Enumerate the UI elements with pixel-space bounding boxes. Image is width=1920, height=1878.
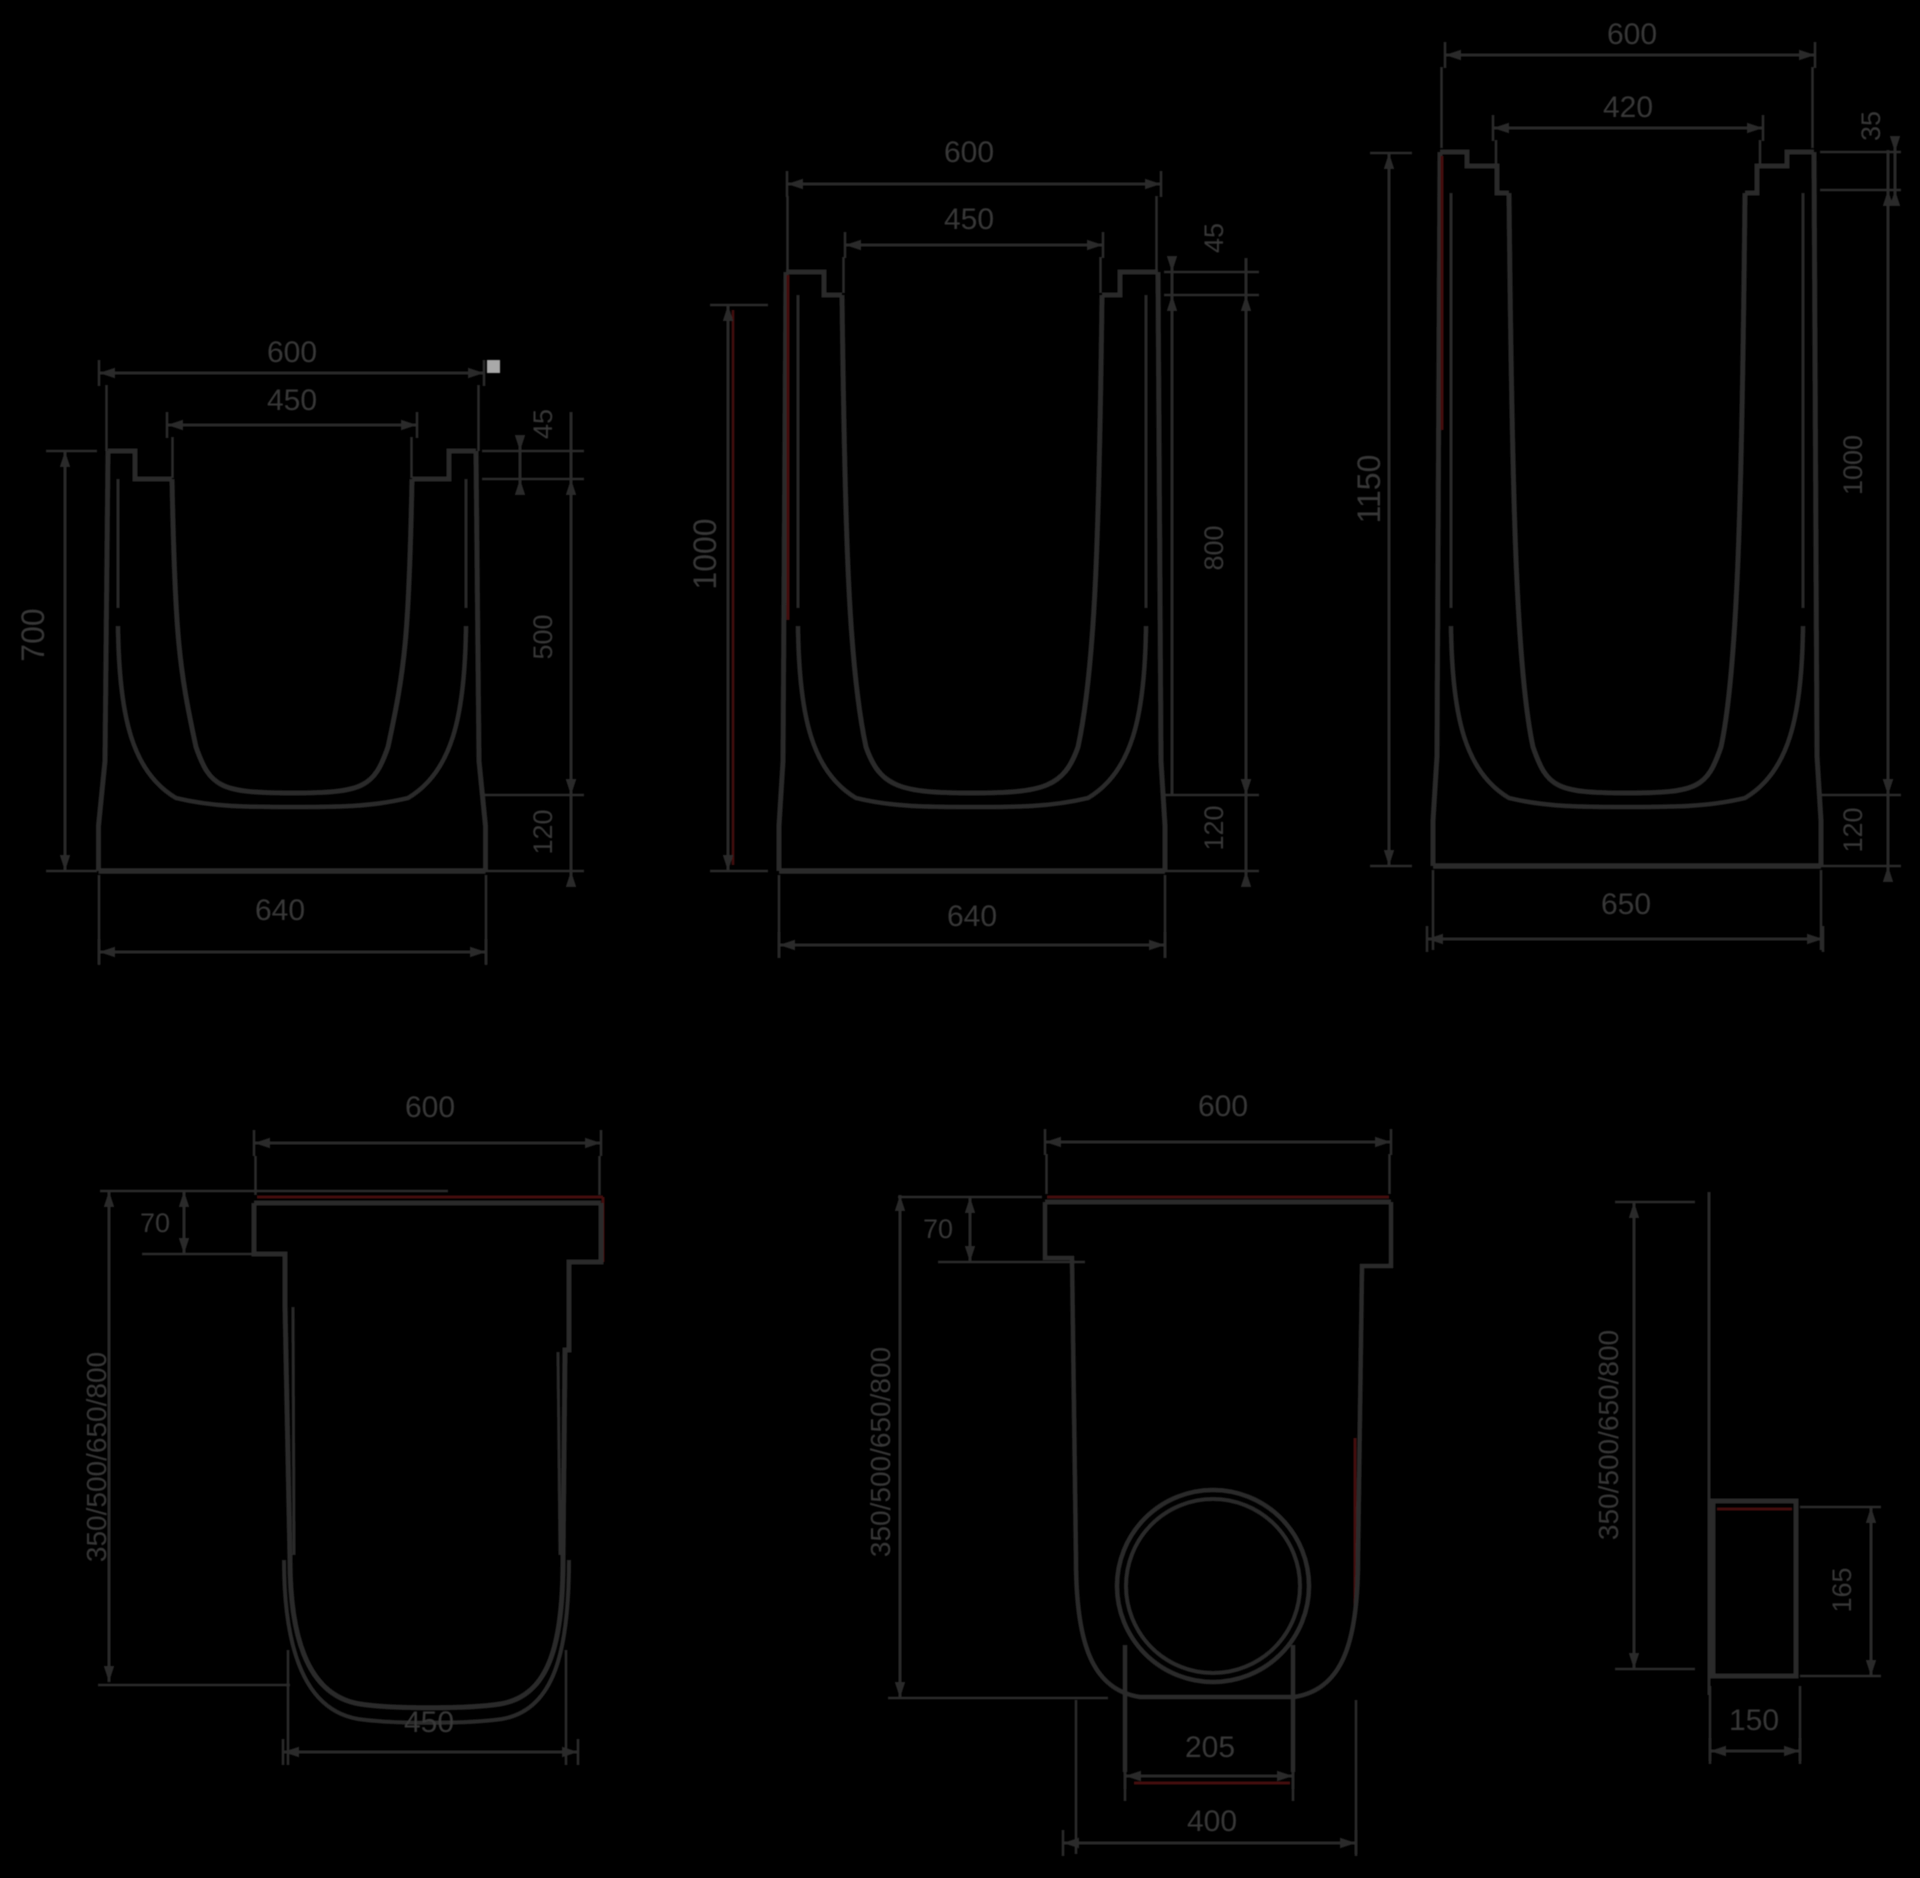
svg-text:600: 600 — [267, 336, 317, 369]
svg-text:45: 45 — [528, 409, 558, 439]
svg-text:120: 120 — [1838, 807, 1868, 852]
svg-text:70: 70 — [140, 1208, 170, 1238]
svg-text:640: 640 — [947, 900, 997, 933]
svg-text:600: 600 — [405, 1091, 455, 1124]
svg-text:640: 640 — [255, 894, 305, 927]
svg-text:450: 450 — [944, 203, 994, 236]
svg-text:1000: 1000 — [1838, 435, 1868, 495]
svg-text:500: 500 — [528, 614, 558, 659]
svg-text:120: 120 — [1199, 805, 1229, 850]
svg-text:45: 45 — [1199, 223, 1229, 253]
svg-text:600: 600 — [944, 136, 994, 169]
svg-text:120: 120 — [528, 809, 558, 854]
svg-text:1150: 1150 — [1351, 455, 1387, 524]
svg-text:205: 205 — [1185, 1731, 1235, 1764]
svg-text:35: 35 — [1856, 111, 1886, 141]
svg-text:800: 800 — [1199, 525, 1229, 570]
svg-text:150: 150 — [1729, 1704, 1779, 1737]
svg-text:350/500/650/800: 350/500/650/800 — [865, 1347, 896, 1557]
svg-text:450: 450 — [404, 1706, 454, 1739]
svg-text:400: 400 — [1187, 1805, 1237, 1838]
svg-text:350/500/650/800: 350/500/650/800 — [1593, 1330, 1624, 1540]
svg-text:350/500/650/800: 350/500/650/800 — [81, 1352, 112, 1562]
svg-text:700: 700 — [15, 608, 51, 661]
svg-text:70: 70 — [923, 1214, 953, 1244]
svg-text:165: 165 — [1827, 1567, 1857, 1612]
svg-text:420: 420 — [1603, 91, 1653, 124]
svg-text:650: 650 — [1601, 888, 1651, 921]
svg-text:1000: 1000 — [687, 518, 723, 589]
svg-text:450: 450 — [267, 384, 317, 417]
svg-text:600: 600 — [1607, 18, 1657, 51]
svg-text:600: 600 — [1198, 1090, 1248, 1123]
